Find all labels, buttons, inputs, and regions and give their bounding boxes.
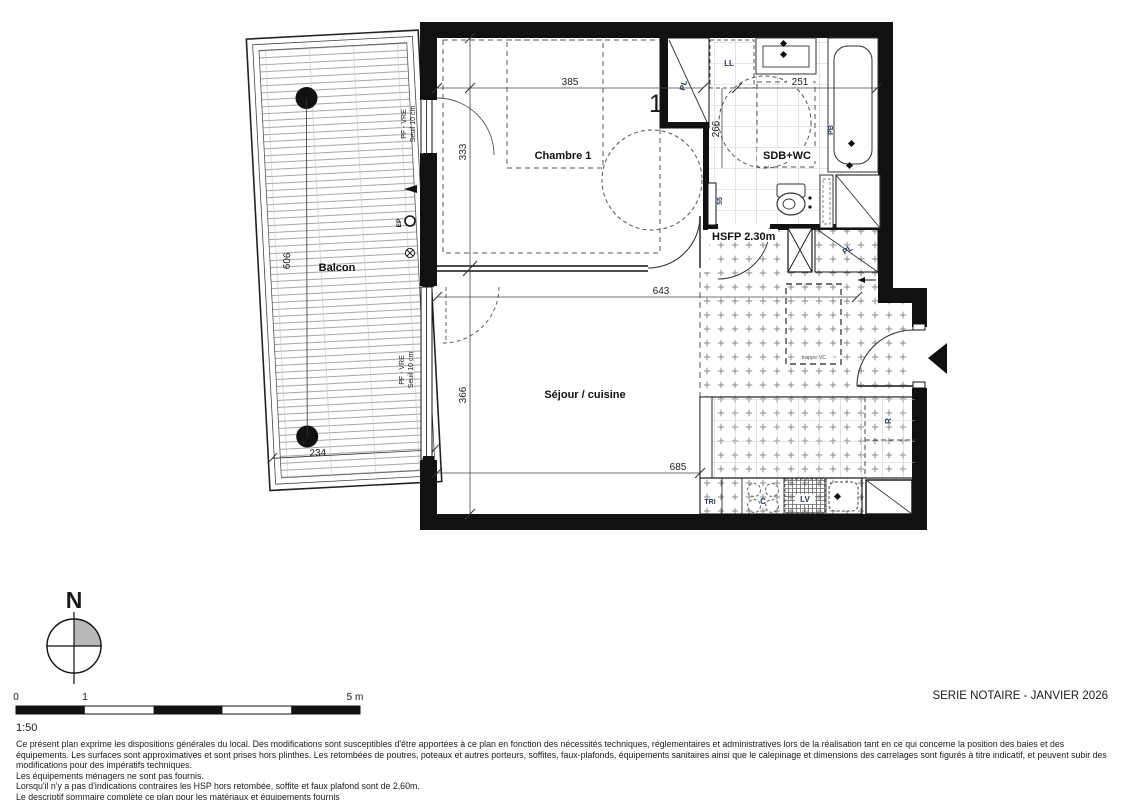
- dim-266: 266: [711, 120, 722, 137]
- wall-bottom: [420, 514, 927, 530]
- disclaimer-line-2: Les équipements ménagers ne sont pas fou…: [16, 771, 1110, 782]
- wall-top: [420, 22, 893, 38]
- dim-55: 55: [717, 197, 724, 205]
- wall-entry-upper: [912, 303, 927, 327]
- disclaimer-paragraph: Ce présent plan exprime les dispositions…: [16, 739, 1110, 771]
- label-ll: LL: [724, 59, 734, 68]
- label-pb: PB: [828, 125, 835, 135]
- north-label: N: [66, 587, 83, 613]
- wall-right-upper: [878, 22, 893, 295]
- disclaimer-line-3: Lorsqu'il n'y a pas d'indications contra…: [16, 781, 1110, 792]
- floorplan-sheet: Chambre 1 SDB+WC Séjour / cuisine Balcon…: [0, 0, 1121, 800]
- scale-bar: 0 1 5 m 1:50: [13, 692, 363, 734]
- series-title: SERIE NOTAIRE - JANVIER 2026: [932, 690, 1108, 702]
- wall-left-upper: [420, 22, 437, 100]
- toilet-bowl: [777, 193, 805, 215]
- scale-1: 1: [82, 692, 88, 703]
- disclaimer-notes: Ce présent plan exprime les dispositions…: [16, 739, 1110, 800]
- bathtub: [828, 38, 878, 172]
- dim-251: 251: [792, 77, 809, 88]
- room-label-chambre: Chambre 1: [535, 150, 592, 162]
- label-trappe-vc: trappe VC: [802, 355, 827, 361]
- ep-drain-icon: [405, 216, 415, 226]
- label-lv: LV: [800, 495, 810, 504]
- label-tri: TRI: [704, 499, 715, 506]
- room-label-sejour: Séjour / cuisine: [544, 389, 625, 401]
- dim-643: 643: [653, 286, 670, 297]
- label-c: C: [760, 497, 766, 506]
- wall-left-middle: [420, 153, 437, 286]
- turning-circle: [602, 130, 702, 230]
- scale-5m: 5 m: [347, 692, 364, 703]
- chambre-door: [648, 216, 700, 268]
- label-door-number: 1: [649, 90, 663, 118]
- bed-dashed: [507, 40, 603, 168]
- scale-0: 0: [13, 692, 19, 703]
- kitchen-zone: [700, 397, 915, 478]
- label-r: R: [884, 418, 893, 424]
- room-zone-dashed: [443, 40, 660, 253]
- dim-333: 333: [458, 143, 469, 160]
- door-swing-arc: [648, 216, 700, 268]
- kitchen-sink: [829, 482, 858, 511]
- towel-radiator: [708, 183, 716, 225]
- scale-ratio: 1:50: [16, 722, 37, 734]
- floorplan-drawing: Chambre 1 SDB+WC Séjour / cuisine Balcon…: [0, 0, 1121, 800]
- dim-385: 385: [562, 77, 579, 88]
- disclaimer-line-4: Le descriptif sommaire complète ce plan …: [16, 792, 1110, 800]
- room-label-balcon: Balcon: [319, 262, 356, 274]
- window-label-pfvre-top: PF - VRE: [401, 109, 408, 139]
- label-hsfp: HSFP 2.30m: [712, 231, 776, 243]
- dim-606: 606: [282, 252, 294, 269]
- window-label-seuil-top: Seuil 10 cm: [410, 106, 417, 143]
- dim-685: 685: [670, 462, 687, 473]
- entry-arrow: [928, 343, 947, 374]
- dim-366: 366: [458, 386, 469, 403]
- north-compass: N: [46, 587, 102, 684]
- balcony: [245, 30, 441, 490]
- window-swing-arc: [443, 287, 499, 343]
- room-label-sdb: SDB+WC: [763, 150, 811, 162]
- window-label-seuil-bottom: Seuil 10 cm: [408, 352, 415, 389]
- wall-right-jog: [878, 288, 927, 303]
- window-label-pfvre-bottom: PF - VRE: [399, 355, 406, 385]
- label-ep: EP: [396, 218, 403, 227]
- dim-234: 234: [309, 448, 327, 460]
